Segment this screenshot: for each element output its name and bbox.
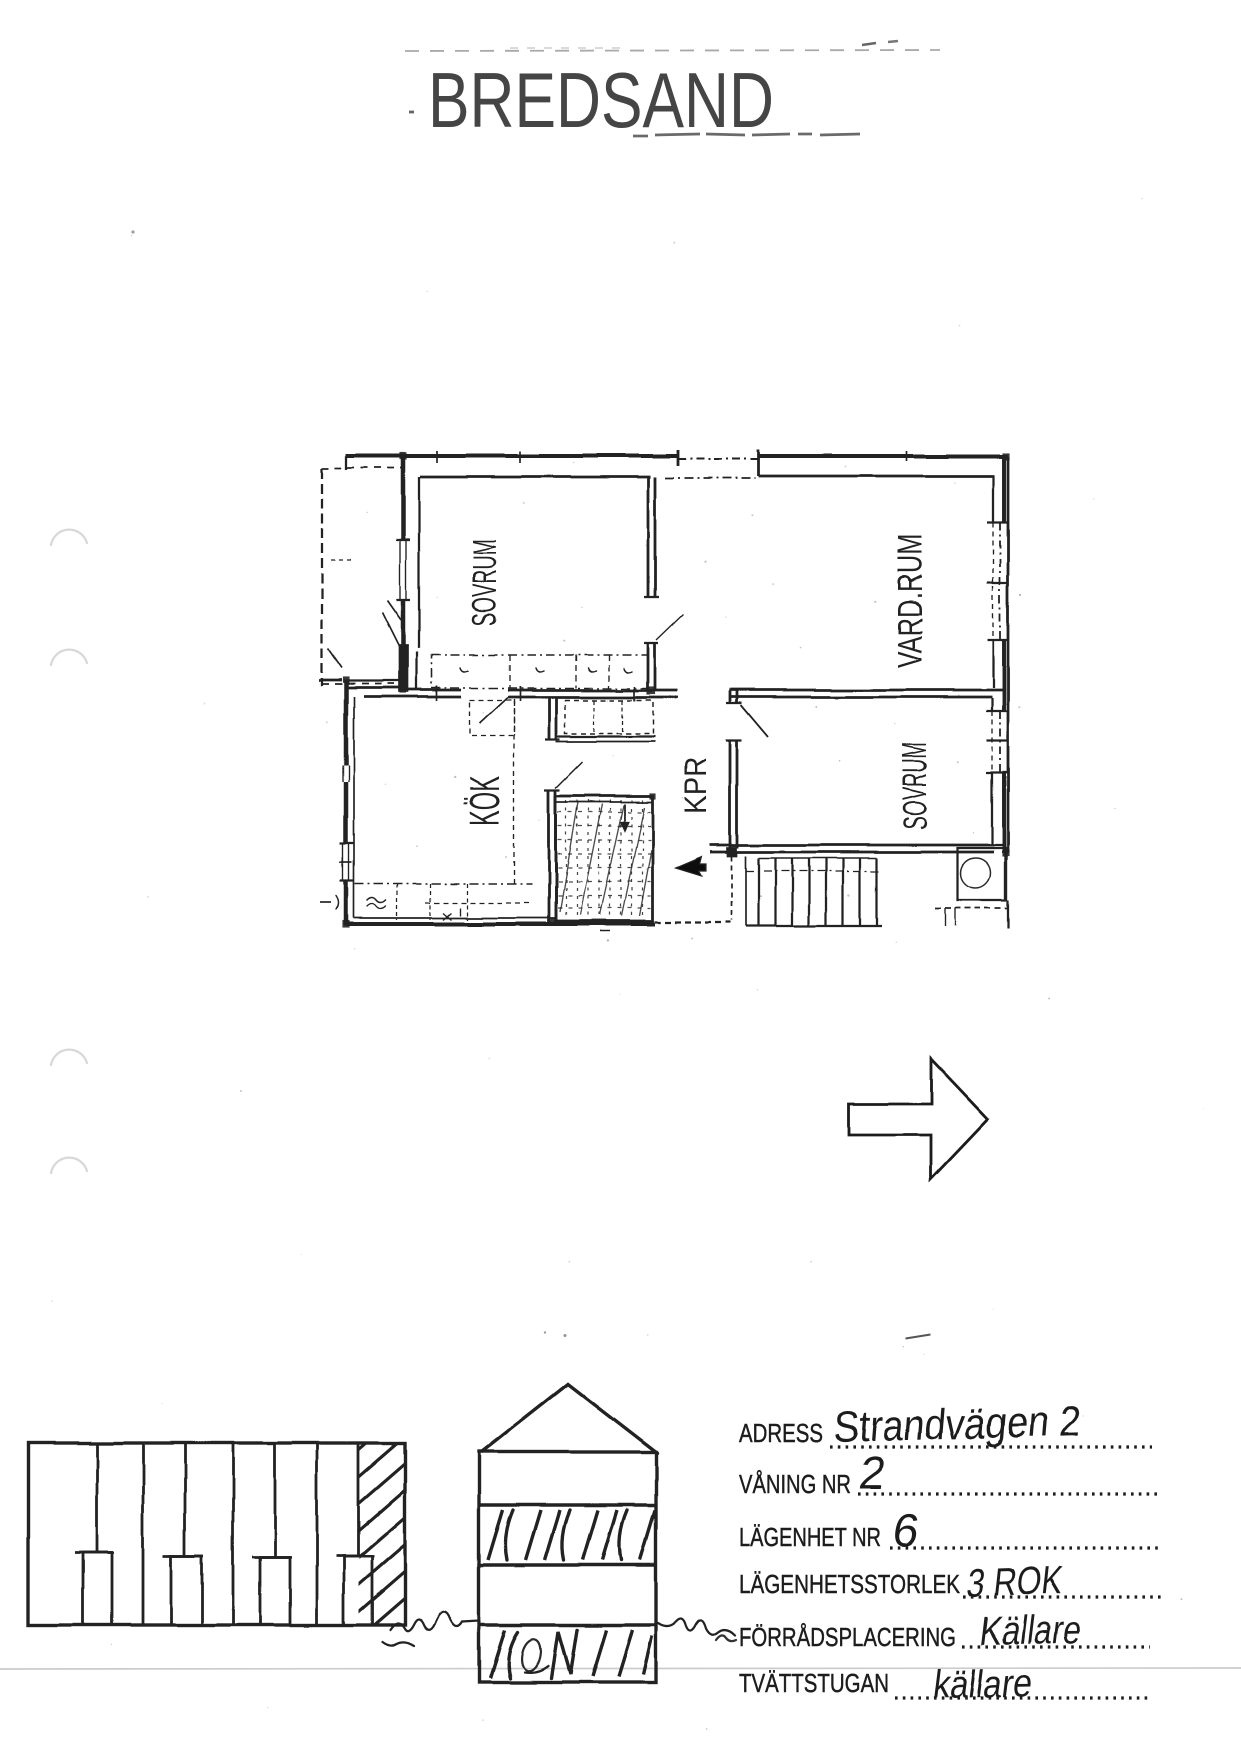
svg-text:VARD.RUM: VARD.RUM (892, 534, 930, 668)
svg-text:TVÄTTSTUGAN: TVÄTTSTUGAN (739, 1668, 889, 1698)
svg-text:3 ROK: 3 ROK (965, 1558, 1065, 1606)
svg-text:6: 6 (890, 1504, 923, 1556)
svg-text:Källare: Källare (978, 1607, 1084, 1654)
svg-text:2: 2 (856, 1447, 889, 1499)
svg-text:ADRESS: ADRESS (739, 1418, 823, 1448)
svg-text:BREDSAND: BREDSAND (428, 56, 774, 144)
svg-text:LÄGENHETSSTORLEK: LÄGENHETSSTORLEK (739, 1569, 961, 1599)
svg-text:källare: källare (930, 1660, 1036, 1707)
svg-text:SOVRUM: SOVRUM (466, 538, 504, 626)
svg-text:LÄGENHET NR: LÄGENHET NR (739, 1522, 881, 1552)
svg-text:VÅNING NR: VÅNING NR (739, 1469, 851, 1499)
svg-text:KPR: KPR (678, 756, 713, 814)
svg-text:SOVRUM: SOVRUM (896, 742, 934, 830)
svg-text:KÖK: KÖK (461, 776, 508, 826)
svg-text:Strandvägen 2: Strandvägen 2 (832, 1397, 1082, 1452)
svg-text:FÖRRÅDSPLACERING: FÖRRÅDSPLACERING (739, 1622, 956, 1652)
